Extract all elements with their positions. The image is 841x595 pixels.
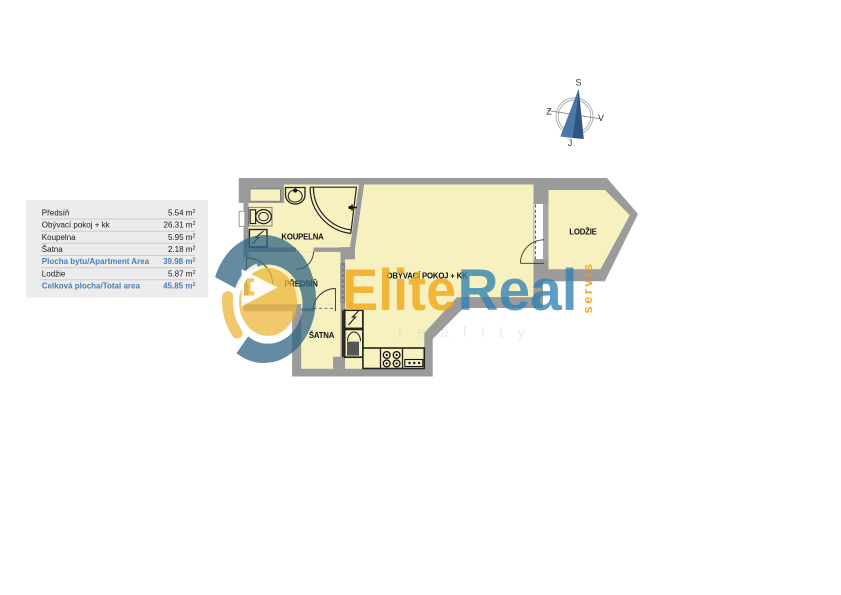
- svg-text:Plocha bytu/Apartment Area: Plocha bytu/Apartment Area: [42, 257, 150, 266]
- svg-text:Elite: Elite: [342, 258, 456, 323]
- svg-text:5.95 m2: 5.95 m2: [168, 233, 196, 242]
- svg-text:Z: Z: [546, 107, 552, 117]
- svg-text:KOUPELNA: KOUPELNA: [281, 233, 324, 242]
- svg-text:ŠATNA: ŠATNA: [309, 331, 335, 340]
- svg-text:Celková plocha/Total area: Celková plocha/Total area: [42, 282, 141, 291]
- svg-text:LODŽIE: LODŽIE: [569, 228, 596, 237]
- svg-text:J: J: [568, 138, 573, 148]
- svg-text:26.31 m2: 26.31 m2: [164, 221, 196, 230]
- svg-text:Šatna: Šatna: [42, 245, 63, 254]
- svg-text:5.54 m2: 5.54 m2: [168, 209, 196, 218]
- svg-text:Obývací pokoj + kk: Obývací pokoj + kk: [42, 221, 111, 230]
- svg-text:V: V: [598, 113, 604, 123]
- svg-text:S: S: [575, 78, 581, 88]
- svg-text:2.18 m2: 2.18 m2: [168, 245, 196, 254]
- svg-text:Koupelna: Koupelna: [42, 233, 76, 242]
- svg-text:reality: reality: [398, 324, 540, 341]
- svg-text:5.87 m2: 5.87 m2: [168, 269, 196, 278]
- svg-text:Real: Real: [458, 258, 578, 323]
- svg-text:45.85 m2: 45.85 m2: [163, 282, 195, 291]
- svg-text:Lodžie: Lodžie: [42, 269, 66, 278]
- svg-text:39.98 m2: 39.98 m2: [163, 257, 195, 266]
- svg-text:servis: servis: [580, 262, 595, 314]
- svg-text:Předsíň: Předsíň: [42, 209, 70, 218]
